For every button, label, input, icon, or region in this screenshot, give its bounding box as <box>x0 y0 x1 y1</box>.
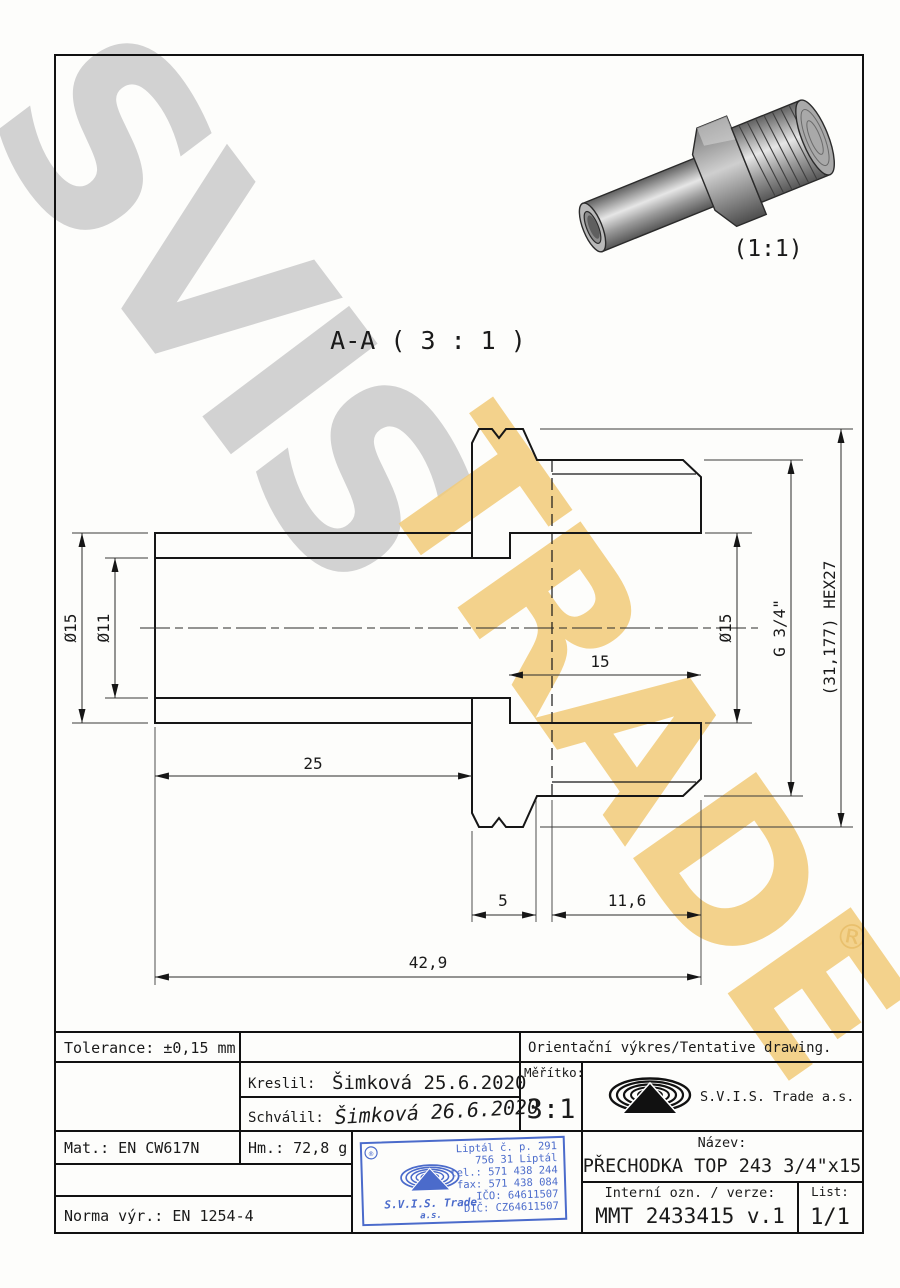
meritko-value: 3:1 <box>527 1094 576 1125</box>
interni-label: Interní ozn. / verze: <box>605 1185 776 1201</box>
dim-hex-width: 5 <box>498 891 508 910</box>
technical-drawing: (1:1) A-A ( 3 : 1 ) <box>0 0 900 1288</box>
dim-outer-diameter-left: Ø15 <box>61 614 80 643</box>
nazev-label: Název: <box>698 1135 747 1151</box>
list-value: 1/1 <box>810 1205 850 1230</box>
weight-text: Hm.: 72,8 g <box>248 1139 347 1157</box>
schvalil-label: Schválil: <box>248 1110 324 1126</box>
dim-tube-length: 25 <box>303 754 322 773</box>
dim-thread-length: 11,6 <box>608 891 647 910</box>
norma-text: Norma výr.: EN 1254-4 <box>64 1207 254 1225</box>
schvalil-signature: Šimková 26.6.2020 <box>334 1094 540 1129</box>
tolerance-text: Tolerance: ±0,15 mm <box>64 1039 236 1057</box>
tube-wall-top <box>155 533 472 558</box>
dim-hex-size: (31,177) HEX27 <box>820 561 839 696</box>
company-logo-icon <box>610 1079 690 1114</box>
drawing-sheet: SVIS TRADE ® <box>0 0 900 1288</box>
dim-thread-size: G 3/4" <box>770 599 789 657</box>
stamp-registered-icon: ® <box>369 1149 374 1158</box>
kreslil-label: Kreslil: <box>248 1076 315 1092</box>
nazev-value: PŘECHODKA TOP 243 3/4"x15 <box>583 1155 861 1177</box>
section-title: A-A ( 3 : 1 ) <box>330 326 526 355</box>
meritko-label: Měřítko: <box>524 1065 584 1080</box>
company-name: S.V.I.S. Trade a.s. <box>700 1089 854 1105</box>
orientation-note: Orientační výkres/Tentative drawing. <box>528 1040 831 1056</box>
section-view <box>140 429 758 827</box>
interni-value: MMT 2433415 v.1 <box>595 1204 785 1228</box>
company-stamp: ® S.V.I.S. Trade a.s. Liptál č. p. 291 7… <box>361 1137 566 1225</box>
part-3d-view: (1:1) <box>564 84 847 281</box>
dim-inner-diameter-left: Ø11 <box>94 614 113 643</box>
body-wall-bottom <box>472 698 701 827</box>
dim-total-length: 42,9 <box>409 953 448 972</box>
material-text: Mat.: EN CW617N <box>64 1139 199 1157</box>
tube-wall-bottom <box>155 698 472 723</box>
dim-bore-diameter-right: Ø15 <box>716 614 735 643</box>
kreslil-value: Šimková 25.6.2020 <box>332 1070 526 1094</box>
list-label: List: <box>811 1184 849 1199</box>
dimensions: Ø15 Ø11 Ø15 G 3/4" (31,177) HEX27 25 15 … <box>61 429 853 985</box>
stamp-company-line2: a.s. <box>420 1211 442 1222</box>
body-wall-top <box>472 429 701 558</box>
thumb-scale-label: (1:1) <box>733 236 802 262</box>
dim-bore-depth: 15 <box>590 652 609 671</box>
